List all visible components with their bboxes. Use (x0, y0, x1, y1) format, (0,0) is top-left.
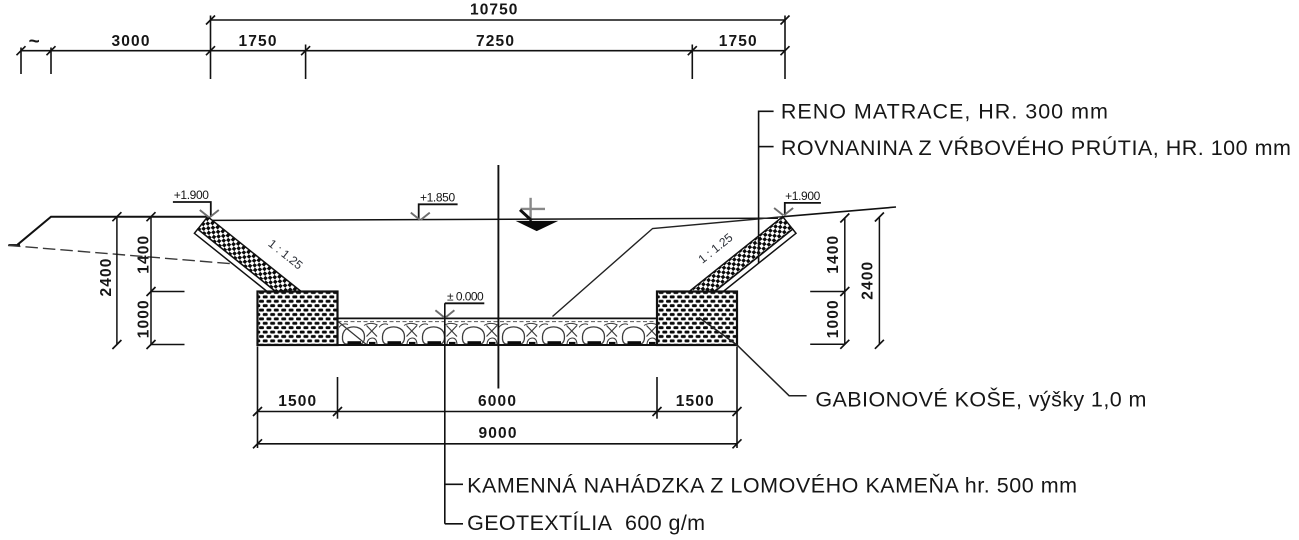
svg-text:+1.900: +1.900 (785, 189, 821, 203)
svg-text:GEOTEXTÍLIA 600 g/m: GEOTEXTÍLIA 600 g/m (467, 510, 705, 535)
svg-text:3000: 3000 (112, 33, 151, 50)
svg-text:1000: 1000 (136, 300, 153, 339)
svg-text:1500: 1500 (278, 393, 317, 410)
svg-text:1750: 1750 (719, 33, 758, 50)
svg-text:2400: 2400 (860, 261, 877, 300)
svg-text:2400: 2400 (98, 258, 115, 297)
svg-text:~: ~ (29, 32, 41, 53)
svg-text:ROVNANINA Z VŔBOVÉHO PRÚTIA, H: ROVNANINA Z VŔBOVÉHO PRÚTIA, HR. 100 mm (781, 135, 1291, 160)
svg-text:1400: 1400 (136, 235, 153, 274)
svg-text:1750: 1750 (239, 33, 278, 50)
svg-text:1000: 1000 (825, 300, 842, 339)
svg-text:± 0.000: ± 0.000 (447, 290, 484, 304)
svg-text:KAMENNÁ NAHÁDZKA Z LOMOVÉHO KA: KAMENNÁ NAHÁDZKA Z LOMOVÉHO KAMEŇA hr. 5… (467, 472, 1077, 497)
svg-text:+1.900: +1.900 (174, 188, 210, 202)
svg-text:10750: 10750 (470, 2, 518, 19)
svg-text:GABIONOVÉ KOŠE, výšky 1,0 m: GABIONOVÉ KOŠE, výšky 1,0 m (815, 387, 1146, 412)
svg-text:7250: 7250 (476, 33, 515, 50)
svg-text:+1.850: +1.850 (420, 191, 456, 205)
svg-text:9000: 9000 (479, 425, 518, 442)
svg-text:1500: 1500 (676, 393, 715, 410)
svg-text:1400: 1400 (825, 235, 842, 274)
svg-text:6000: 6000 (478, 393, 517, 410)
svg-text:RENO MATRACE, HR. 300 mm: RENO MATRACE, HR. 300 mm (781, 100, 1108, 124)
